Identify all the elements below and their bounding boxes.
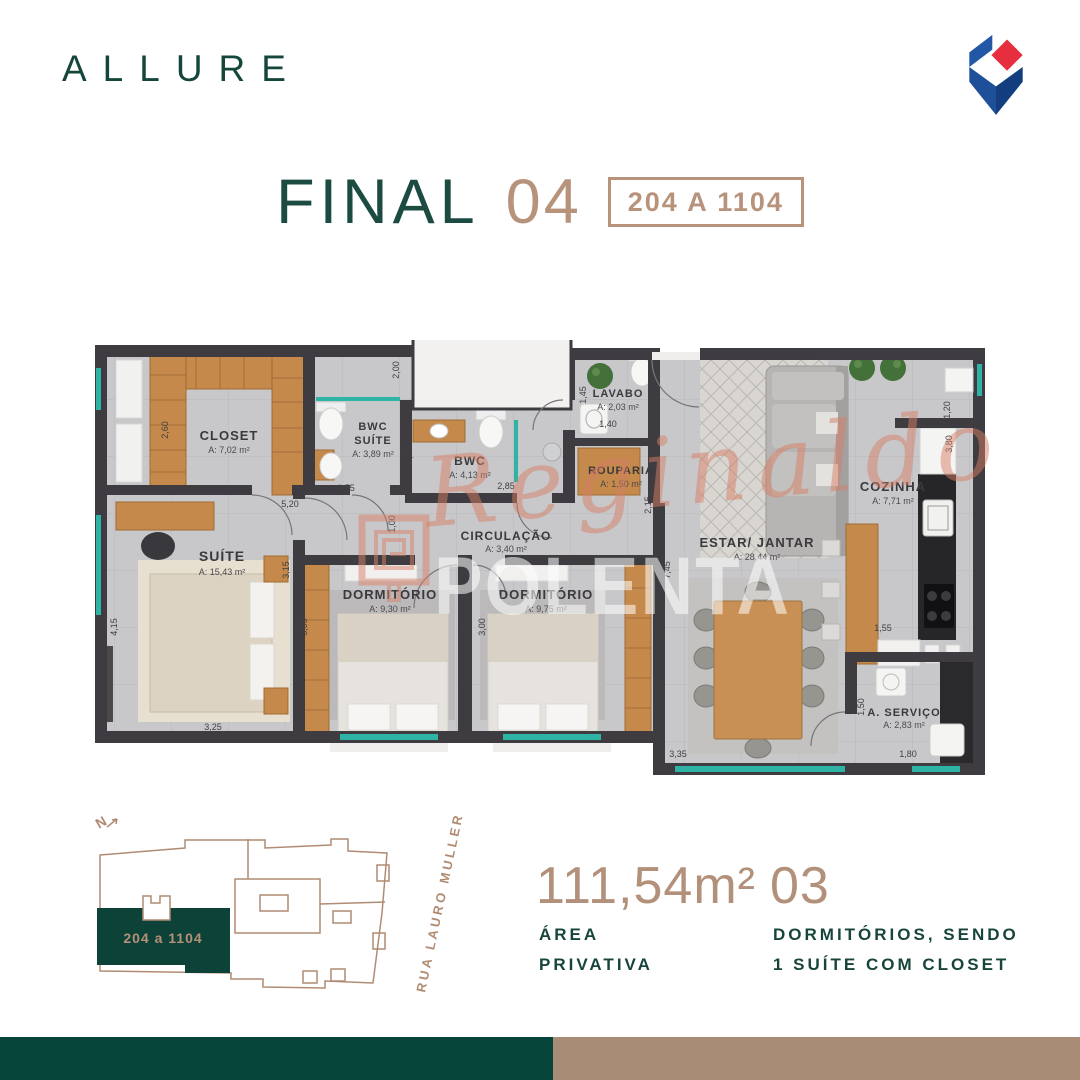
stair-core [143, 896, 170, 920]
dorm2-wardrobe [625, 558, 651, 736]
plant-leaf [854, 360, 862, 368]
window-glass [675, 766, 845, 772]
allure-logo: ALLURE [62, 48, 302, 90]
pillow [348, 704, 390, 730]
dining-chair [800, 647, 824, 669]
room-label-cozinha: COZINHA [860, 479, 926, 494]
room-label-circulacao: CIRCULAÇÃO [461, 528, 552, 543]
dining-chair [745, 738, 771, 758]
room-label-closet: CLOSET [200, 428, 259, 443]
closet-dresser [116, 360, 142, 418]
north-arrow-icon [107, 819, 117, 827]
shower-glass [514, 420, 518, 482]
shower-glass [316, 397, 400, 401]
desk-chair [141, 532, 175, 560]
window-glass [912, 766, 960, 772]
floor-plan: CLOSET A: 7,02 m² BWC SUÍTE A: 3,89 m² B… [95, 340, 985, 790]
burner [941, 611, 951, 621]
dim-text: 3,15 [281, 561, 291, 579]
pillow [396, 704, 438, 730]
watermark-monogram-icon [358, 514, 430, 610]
dim-text: 3,00 [477, 618, 487, 636]
window-glass [977, 364, 982, 396]
north-label: N [93, 813, 110, 832]
room-area: A: 3,40 m² [485, 544, 527, 554]
room-area: A: 2,03 m² [597, 402, 639, 412]
toilet [479, 416, 503, 448]
bedrooms-label: DORMITÓRIOS, SENDO 1 SUÍTE COM CLOSET [773, 920, 1019, 980]
room-label-rouparia: ROUPARIA [588, 465, 654, 477]
dining-table [714, 601, 802, 739]
dim-text: 5,20 [281, 499, 299, 509]
dorm1-blanket [338, 614, 448, 662]
dim-text: 2,00 [391, 361, 401, 379]
dim-text: 3,35 [669, 749, 687, 759]
dim-text: 3,25 [204, 722, 222, 732]
dorm1-wardrobe [303, 562, 329, 734]
room-label-bwc-suite: BWC [358, 421, 387, 433]
dim-text: 2,60 [160, 421, 170, 439]
room-label-dorm2: DORMITÓRIO [499, 587, 594, 602]
plant-leaf [592, 368, 600, 376]
street-label: RUA LAURO MULLER [413, 813, 466, 994]
private-area-label-line2: PRIVATIVA [539, 950, 653, 980]
dim-text: 1,40 [599, 419, 617, 429]
closet-dresser [116, 424, 142, 482]
closet-wardrobe [186, 355, 272, 389]
window-glass [340, 734, 438, 740]
toilet [319, 408, 343, 440]
footer-bar-green [0, 1037, 553, 1080]
bedrooms-label-line2: 1 SUÍTE COM CLOSET [773, 950, 1019, 980]
shower-drain [543, 443, 561, 461]
final-label: FINAL [276, 166, 480, 238]
private-area-label-line1: ÁREA [539, 920, 653, 950]
kitchen-window [945, 368, 973, 392]
unit-range-label: 204 a 1104 [123, 930, 202, 946]
stool [822, 582, 840, 598]
room-area: A: 7,02 m² [208, 445, 250, 455]
room-area: A: 3,89 m² [352, 449, 394, 459]
sofa-pillow [816, 412, 838, 434]
closet-wardrobe [272, 355, 305, 495]
window-glass [96, 515, 101, 615]
sink [430, 424, 448, 438]
room-area: A: 2,83 m² [883, 720, 925, 730]
window-sill [493, 743, 611, 752]
dim-text: 1,55 [874, 623, 892, 633]
footer-bar-tan [553, 1037, 1080, 1080]
room-label-estar: ESTAR/ JANTAR [699, 535, 814, 550]
final-number: 04 [506, 166, 582, 238]
bidet [320, 453, 342, 479]
dim-text: 1,45 [404, 446, 414, 464]
stool [822, 540, 840, 556]
pillow [498, 704, 540, 730]
burner [941, 591, 951, 601]
window-glass [503, 734, 601, 740]
suite-desk [116, 502, 214, 530]
room-label-suite: SUÍTE [199, 548, 245, 564]
stool [822, 624, 840, 640]
room-label-servico: A. SERVIÇO [867, 707, 940, 719]
dining-chair [800, 609, 824, 631]
dim-text: 1,80 [899, 749, 917, 759]
plant [587, 363, 613, 389]
window-sill [330, 743, 448, 752]
room-area: A: 1,50 m² [600, 479, 642, 489]
dining-chair [745, 582, 771, 602]
room-area: A: 15,43 m² [199, 567, 246, 577]
dim-text: 7,45 [662, 561, 672, 579]
burner [927, 591, 937, 601]
room-label-bwc: BWC [454, 454, 486, 468]
entry-sill [652, 352, 700, 360]
sofa-pillow [816, 464, 838, 486]
nightstand [264, 688, 288, 714]
room-area: A: 7,71 m² [872, 496, 914, 506]
kitchen-island [846, 524, 878, 664]
flyer-page: ALLURE FINAL 04 204 A 1104 [0, 0, 1080, 1080]
dim-text: 1,50 [856, 698, 866, 716]
washer [876, 668, 906, 696]
dim-text: 1,55 [337, 483, 355, 493]
dim-text: 2,70 [243, 345, 261, 355]
dim-text: 3,80 [944, 435, 954, 453]
site-plan: 204 a 1104 N RUA LAURO MULLER [85, 813, 470, 1003]
dim-text: 2,85 [497, 481, 515, 491]
plant-leaf [893, 360, 901, 368]
dim-text: 1,45 [578, 386, 588, 404]
room-area: A: 4,13 m² [449, 470, 491, 480]
dim-text: 5,30 [819, 351, 837, 361]
pillow [546, 704, 588, 730]
burner [927, 611, 937, 621]
dim-text: 2,15 [643, 496, 653, 514]
dim-text: 3,00 [299, 618, 309, 636]
cooktop [924, 584, 954, 628]
room-label-lavabo: LAVABO [593, 388, 644, 400]
room-area: A: 9,75 m² [525, 604, 567, 614]
dim-text: 1,20 [942, 401, 952, 419]
dresser [496, 565, 568, 581]
unit-title: FINAL 04 204 A 1104 [0, 166, 1080, 238]
dining-chair [800, 685, 824, 707]
room-label-bwc-suite2: SUÍTE [354, 434, 391, 447]
bedrooms-label-line1: DORMITÓRIOS, SENDO [773, 920, 1019, 950]
bedrooms-count-value: 03 [770, 856, 830, 916]
suite-pillow [250, 582, 274, 638]
sofa-cushion [772, 372, 844, 400]
laundry-tank [930, 724, 964, 756]
dim-text: 4,15 [109, 618, 119, 636]
dorm2-blanket [488, 614, 598, 662]
common-hall [413, 340, 571, 409]
room-area: A: 28,44 m² [734, 552, 781, 562]
developer-logo-icon [950, 26, 1042, 121]
private-area-value: 111,54m² [536, 856, 756, 916]
private-area-label: ÁREA PRIVATIVA [539, 920, 653, 980]
window-glass [96, 368, 101, 410]
floors-badge: 204 A 1104 [608, 177, 804, 227]
